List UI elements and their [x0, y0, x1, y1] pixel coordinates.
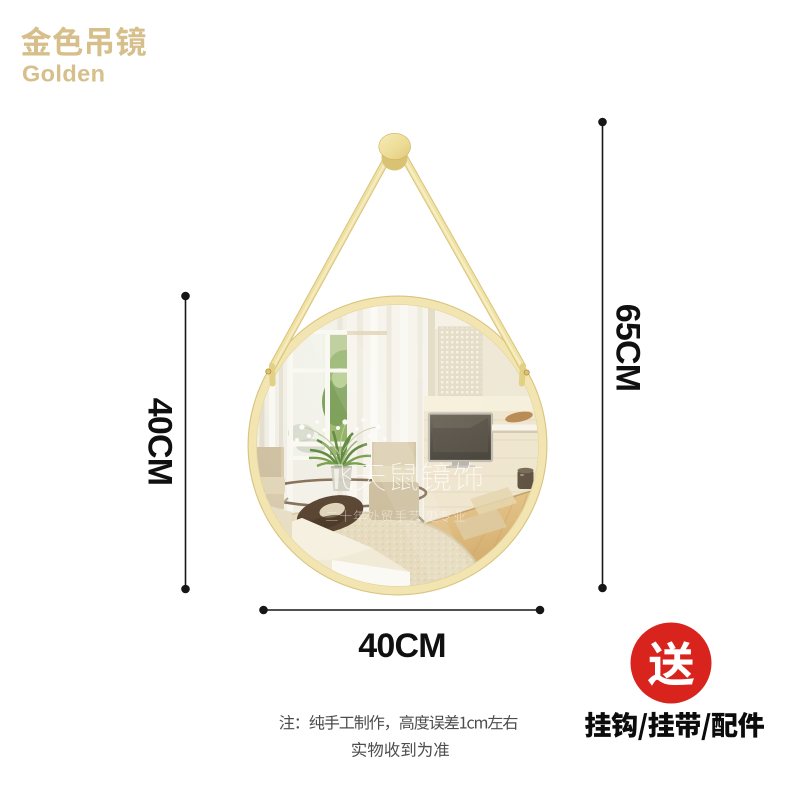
svg-text:65CM: 65CM — [609, 304, 647, 392]
svg-text:Golden: Golden — [22, 61, 105, 87]
svg-text:40CM: 40CM — [141, 398, 179, 486]
svg-text:40CM: 40CM — [358, 627, 446, 665]
